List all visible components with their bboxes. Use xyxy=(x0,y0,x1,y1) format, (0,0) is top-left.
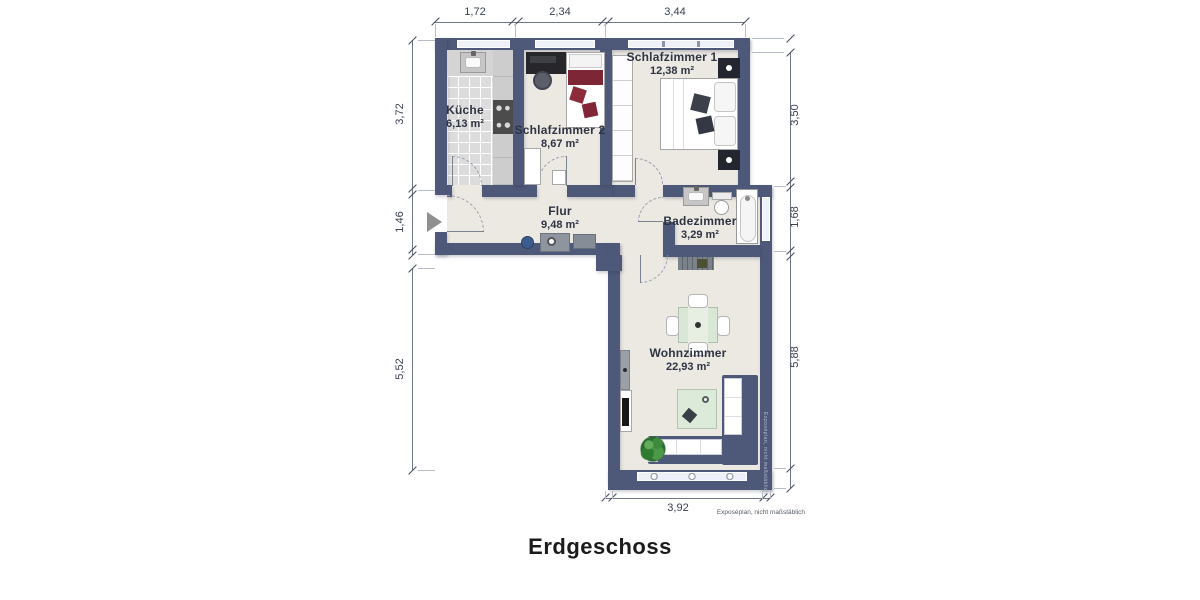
room-label-wohnzimmer: Wohnzimmer 22,93 m² xyxy=(628,347,748,373)
coffee-table-icon xyxy=(677,389,717,429)
room-label-schlafzimmer1: Schlafzimmer 1 12,38 m² xyxy=(607,51,737,77)
radiator-icon xyxy=(678,257,714,270)
cushion-icon xyxy=(696,116,715,135)
dim-extension xyxy=(752,52,784,53)
room-area: 9,48 m² xyxy=(510,219,610,232)
dim-label: 3,72 xyxy=(393,94,407,134)
sofa-cushions xyxy=(724,378,742,435)
dim-extension xyxy=(418,254,435,255)
page-title: Erdgeschoss xyxy=(0,534,1200,560)
dim-extension xyxy=(774,251,786,252)
wall xyxy=(567,185,612,197)
dim-extension xyxy=(612,491,613,499)
dim-extension xyxy=(605,24,606,37)
bed-blanket xyxy=(568,70,603,85)
dim-label: 3,44 xyxy=(655,5,695,19)
dim-line-bottom xyxy=(605,498,770,499)
chair-icon xyxy=(717,316,730,336)
door-leaf xyxy=(566,156,567,186)
dim-extension xyxy=(762,491,763,499)
door-leaf xyxy=(452,156,453,186)
dim-line-top xyxy=(435,22,745,23)
dim-label: 2,34 xyxy=(540,5,580,19)
wall xyxy=(612,185,635,197)
dim-extension xyxy=(515,24,516,37)
wall xyxy=(596,255,622,271)
dim-label: 1,72 xyxy=(455,5,495,19)
washing-machine-icon xyxy=(540,233,570,252)
dim-label: 1,68 xyxy=(788,197,802,237)
dim-extension xyxy=(774,186,786,187)
dim-label: 3,50 xyxy=(788,95,802,135)
dim-line-left xyxy=(412,40,413,255)
dim-line-left xyxy=(412,268,413,470)
dining-table-icon xyxy=(678,307,718,343)
bathroom-sink-icon xyxy=(683,187,709,206)
room-label-schlafzimmer2: Schlafzimmer 2 8,67 m² xyxy=(495,124,625,150)
plant-icon xyxy=(639,435,667,463)
room-name: Wohnzimmer xyxy=(628,347,748,361)
door-leaf xyxy=(447,231,484,232)
dim-label: 3,92 xyxy=(658,501,698,515)
dim-extension xyxy=(774,488,786,489)
window xyxy=(457,40,510,48)
bed-pillow xyxy=(714,116,736,146)
kitchen-sink-icon xyxy=(460,52,486,73)
desk-chair-icon xyxy=(533,71,552,90)
bed-pillow xyxy=(569,54,602,68)
dim-extension xyxy=(435,24,436,37)
room-area: 22,93 m² xyxy=(628,361,748,374)
disclaimer-text: Exposéplan, nicht maßstäblich xyxy=(715,509,805,516)
stool-icon xyxy=(521,236,534,249)
wall xyxy=(482,185,537,197)
room-area: 8,67 m² xyxy=(495,138,625,151)
room-area: 12,38 m² xyxy=(607,65,737,78)
chair-icon xyxy=(688,294,708,308)
dim-tick xyxy=(786,34,794,42)
dim-extension xyxy=(418,470,435,471)
dim-label: 1,46 xyxy=(393,202,407,242)
dim-label: 5,88 xyxy=(788,337,802,377)
room-label-badezimmer: Badezimmer 3,29 m² xyxy=(645,215,755,241)
chair-icon xyxy=(666,316,679,336)
door-leaf xyxy=(635,158,636,185)
dim-extension xyxy=(752,38,784,39)
cushion-icon xyxy=(582,102,599,119)
dim-label: 5,52 xyxy=(393,349,407,389)
dresser-icon xyxy=(573,234,596,249)
floorplan-page: Exposéplan, nicht maßstäblich Küche 6,13… xyxy=(0,0,1200,600)
room-area: 3,29 m² xyxy=(645,229,755,242)
door-leaf xyxy=(640,255,641,283)
room-name: Badezimmer xyxy=(645,215,755,229)
tv-icon xyxy=(622,398,629,426)
room-name: Küche xyxy=(415,104,515,118)
dim-extension xyxy=(418,190,435,191)
dim-extension xyxy=(418,40,435,41)
room-name: Schlafzimmer 2 xyxy=(495,124,625,138)
room-name: Schlafzimmer 1 xyxy=(607,51,737,65)
window xyxy=(628,40,734,48)
entrance-arrow-icon xyxy=(427,212,442,232)
wall-watermark: Exposéplan, nicht maßstäblich xyxy=(762,412,768,494)
window xyxy=(535,40,595,48)
dim-extension xyxy=(770,491,771,499)
cabinet-icon xyxy=(524,148,541,185)
wall xyxy=(608,243,620,482)
dim-extension xyxy=(605,491,606,499)
room-label-flur: Flur 9,48 m² xyxy=(510,205,610,231)
dim-extension xyxy=(774,468,786,469)
dim-extension xyxy=(745,24,746,37)
window xyxy=(762,197,770,241)
wall xyxy=(663,245,760,257)
panorama-window xyxy=(637,472,747,481)
dim-extension xyxy=(418,268,435,269)
bed-pillow xyxy=(714,82,736,112)
cabinet-icon xyxy=(552,170,566,185)
nightstand-icon xyxy=(718,150,740,170)
room-name: Flur xyxy=(510,205,610,219)
